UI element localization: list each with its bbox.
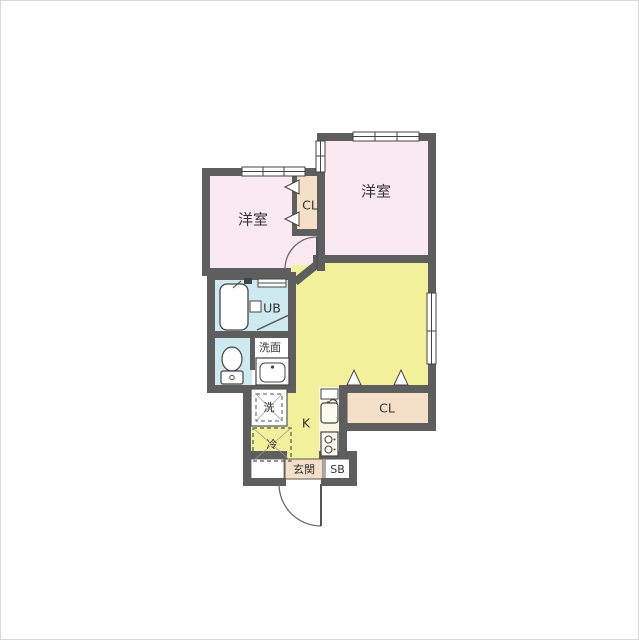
toilet-knob-icon	[230, 375, 234, 379]
toilet-icon	[222, 347, 242, 371]
wall-bedroom1-left	[202, 168, 210, 276]
bath-faucet-icon	[250, 301, 261, 312]
vanity-faucet-icon	[271, 365, 274, 368]
wall-shoebox-right	[349, 451, 357, 486]
window-bath-vent	[258, 279, 286, 287]
room-living	[317, 259, 430, 389]
floorplan-svg: 洋室 洋室 CL UB 洗面 洗 冷 K CL 玄関 SB	[1, 1, 639, 640]
wall-living-top	[313, 255, 436, 263]
room-living-hall	[292, 265, 319, 389]
label-bedroom-1: 洋室	[238, 211, 268, 229]
wall-closet-lower-bottom	[341, 423, 436, 431]
wall-bath-block-left	[207, 272, 215, 393]
label-fridge: 冷	[267, 438, 278, 451]
label-shoe-box: SB	[330, 463, 345, 476]
wall-kitchen-left	[243, 385, 251, 486]
window-bedroom2-top	[353, 132, 419, 141]
label-entrance: 玄関	[293, 462, 315, 476]
wall-toilet-divider	[250, 338, 255, 370]
kitchen-shelf-icon	[321, 389, 338, 399]
floorplan-canvas: 洋室 洋室 CL UB 洗面 洗 冷 K CL 玄関 SB	[0, 0, 639, 640]
window-bedroom2-left	[316, 141, 325, 172]
stove-icon	[321, 432, 338, 456]
door-entrance	[279, 484, 321, 526]
label-kitchen: K	[302, 416, 311, 431]
label-closet-lower: CL	[379, 401, 395, 416]
label-unit-bath: UB	[263, 301, 281, 316]
label-washer: 洗	[264, 401, 275, 414]
label-bedroom-2: 洋室	[361, 183, 391, 201]
wall-closet-lower-top	[341, 385, 436, 393]
wall-kitchen-right	[339, 385, 347, 459]
label-washroom: 洗面	[259, 341, 281, 354]
wall-right-outer	[428, 133, 436, 431]
shower-icon	[244, 278, 252, 284]
entrance-step	[251, 459, 284, 479]
window-living-right	[427, 293, 436, 364]
bathtub-icon	[220, 284, 248, 330]
kitchen-sink-icon	[321, 400, 338, 423]
window-bedroom1-top	[242, 167, 305, 176]
label-closet-upper: CL	[302, 198, 318, 213]
wall-bath-divider	[207, 331, 296, 338]
